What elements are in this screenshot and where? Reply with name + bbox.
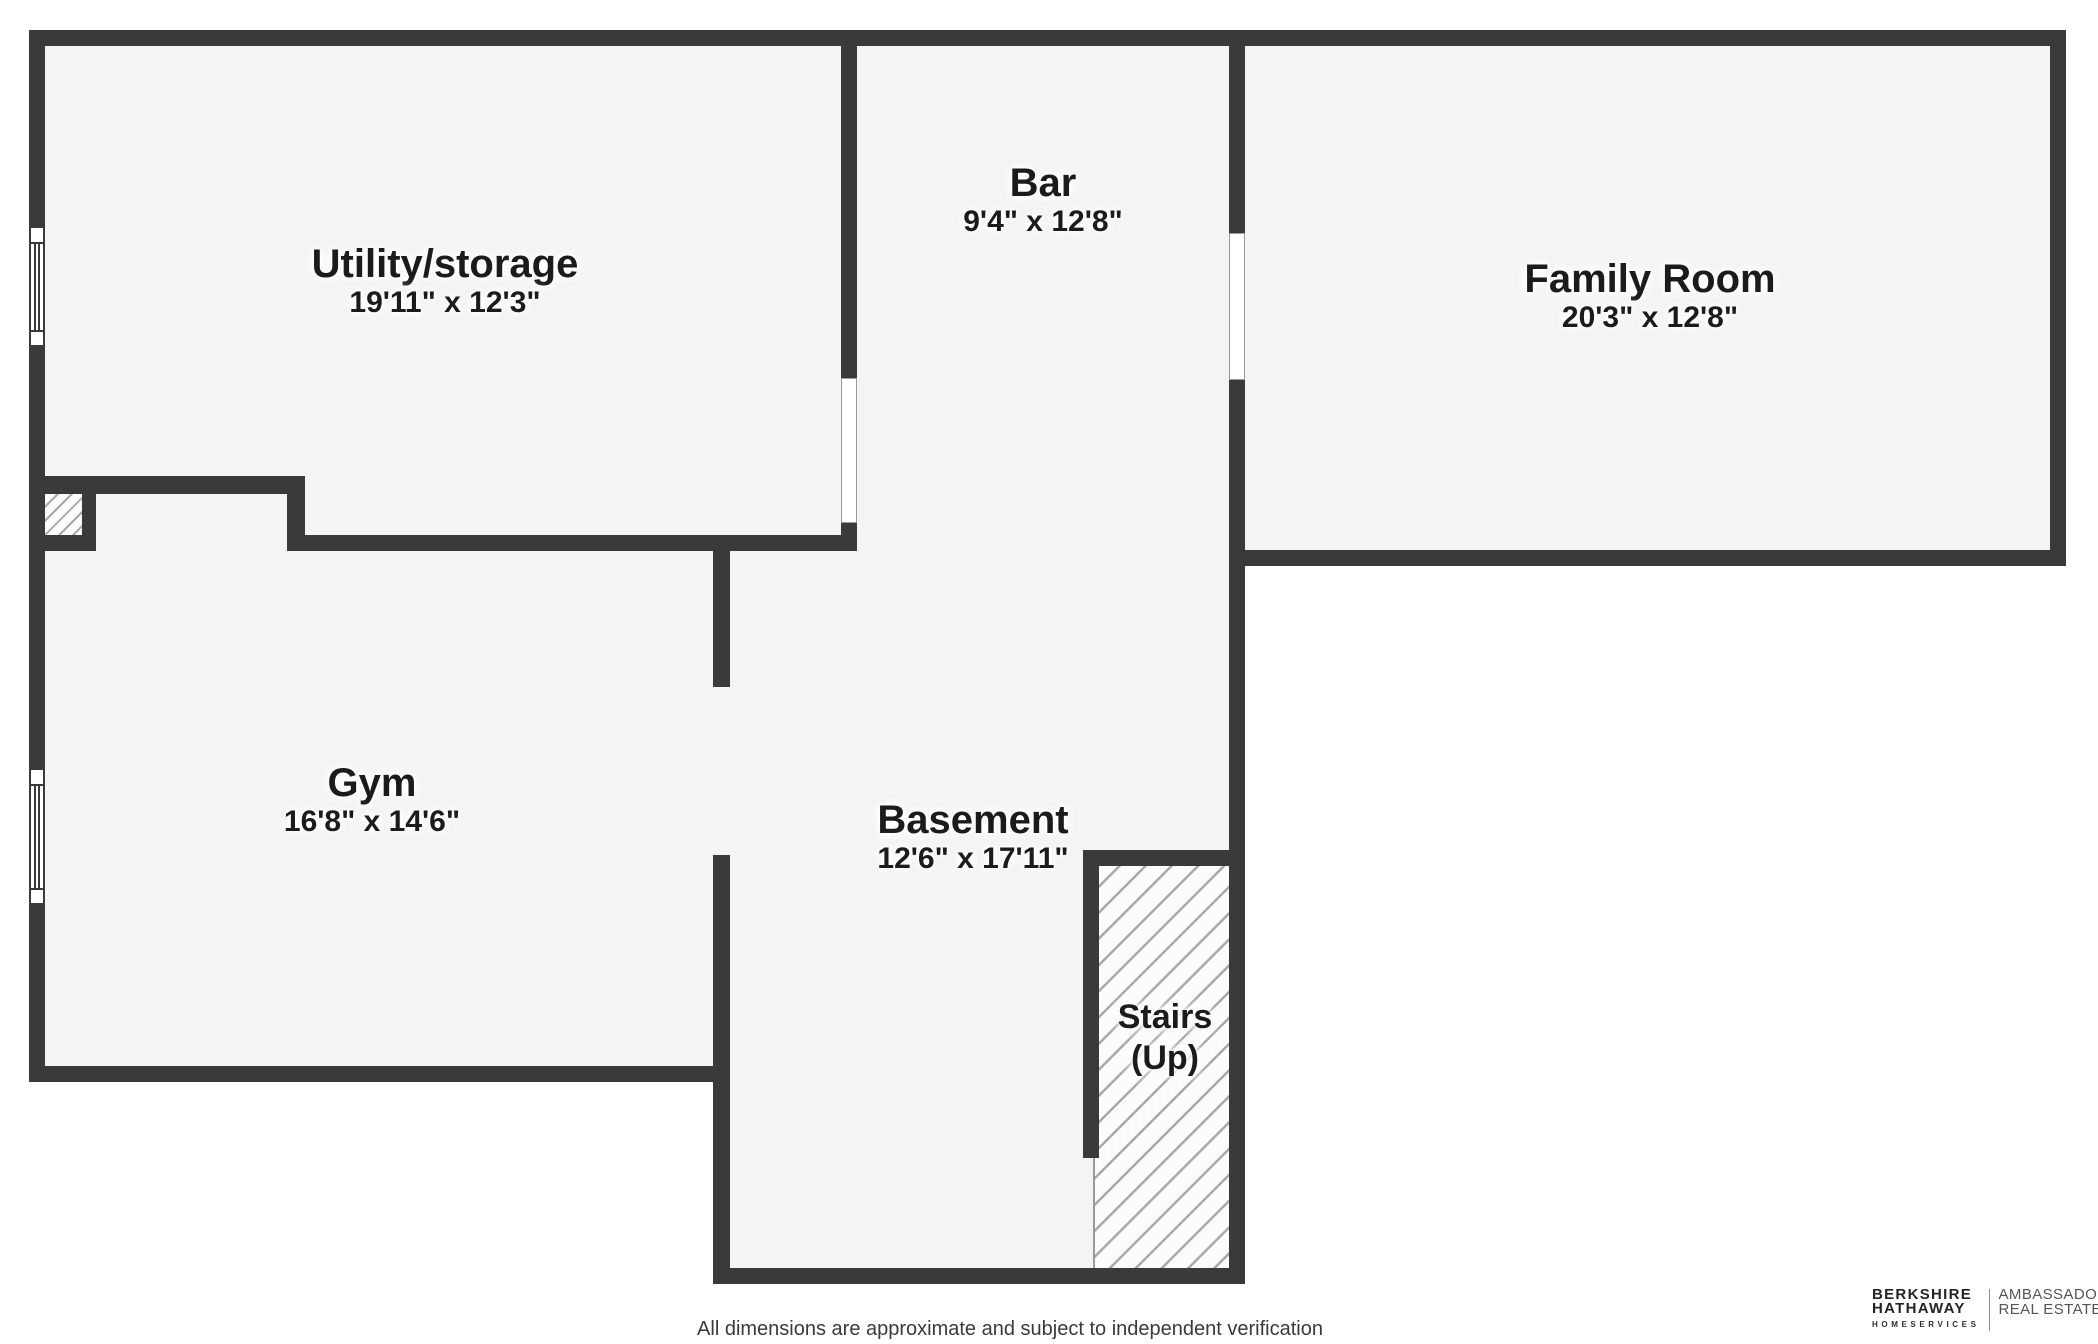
room-dimensions: 12'6" x 17'11" <box>877 842 1068 876</box>
floor-gym-basement-passage <box>713 687 730 855</box>
floor-plan: Utility/storage 19'11" x 12'3" Bar 9'4" … <box>0 0 2098 1344</box>
room-name: Bar <box>963 161 1123 205</box>
wall-stairs-top <box>1083 850 1243 866</box>
wall-utility-bottom <box>287 535 857 551</box>
brand-division-line2: REAL ESTATE <box>1999 1303 2098 1318</box>
window-utility-storage <box>29 226 45 347</box>
room-name: Family Room <box>1524 257 1775 301</box>
wall-stairs-left <box>1083 850 1099 1158</box>
wall-top-exterior <box>29 30 2066 46</box>
brand-name-line2: HATHAWAY <box>1872 1302 1980 1316</box>
door-opening-utility-bar <box>841 378 857 523</box>
room-name: Gym <box>284 761 460 805</box>
window-pane-lines <box>34 244 40 330</box>
room-dimensions: 20'3" x 12'8" <box>1524 301 1775 335</box>
opening-bar-family <box>1229 233 1245 380</box>
room-label-gym: Gym 16'8" x 14'6" <box>284 761 460 839</box>
room-name: Basement <box>877 798 1068 842</box>
room-dimensions: 16'8" x 14'6" <box>284 805 460 839</box>
window-pane-lines <box>34 786 40 888</box>
room-dimensions: 19'11" x 12'3" <box>312 286 579 320</box>
brand-logo-right: AMBASSADOR REAL ESTATE <box>1999 1288 2098 1317</box>
wall-left-exterior <box>29 30 45 1082</box>
room-dimensions: 9'4" x 12'8" <box>963 205 1123 239</box>
room-label-bar: Bar 9'4" x 12'8" <box>963 161 1123 239</box>
disclaimer-text: All dimensions are approximate and subje… <box>697 1318 1323 1340</box>
wall-family-room-bottom <box>1243 550 2066 566</box>
room-name: Utility/storage <box>312 242 579 286</box>
window-gym <box>29 768 45 905</box>
window-sill-line <box>31 888 43 890</box>
window-sill-line <box>31 330 43 332</box>
wall-bar-family-divider <box>1229 46 1245 1284</box>
brand-logo: BERKSHIRE HATHAWAY HOMESERVICES AMBASSAD… <box>1872 1288 2098 1331</box>
room-label-family-room: Family Room 20'3" x 12'8" <box>1524 257 1775 335</box>
wall-right-exterior <box>2050 30 2066 566</box>
chimney-post-hatch <box>45 494 82 535</box>
wall-gym-bottom <box>29 1066 730 1082</box>
room-label-basement: Basement 12'6" x 17'11" <box>877 798 1068 876</box>
brand-logo-left: BERKSHIRE HATHAWAY HOMESERVICES <box>1872 1288 1980 1329</box>
logo-divider-line <box>1989 1289 1990 1331</box>
wall-gym-basement-lower <box>713 855 730 1284</box>
stairs-label: Stairs (Up) <box>1118 997 1213 1079</box>
stairs-label-line1: Stairs <box>1118 997 1213 1038</box>
wall-basement-bottom <box>713 1268 1243 1284</box>
brand-name-line3: HOMESERVICES <box>1872 1320 1980 1329</box>
stairs-label-line2: (Up) <box>1118 1038 1213 1079</box>
floor-bar <box>857 46 1229 551</box>
room-label-utility-storage: Utility/storage 19'11" x 12'3" <box>312 242 579 320</box>
wall-gym-basement-upper <box>713 535 730 687</box>
